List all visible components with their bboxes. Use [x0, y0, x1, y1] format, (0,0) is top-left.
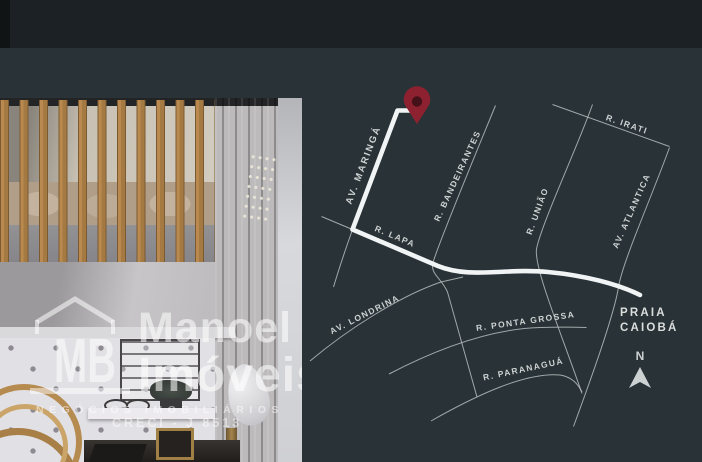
street-londrina-curve [310, 277, 463, 361]
street-irati-line [553, 105, 670, 147]
compass-north-arrow-icon [629, 367, 651, 388]
street-label-r-ponta-grossa: R. PONTA GROSSA [475, 309, 575, 333]
street-maringa-south-segment [334, 230, 353, 288]
area-label-praia-line1: PRAIA [620, 307, 667, 319]
street-label-av-atlantica: AV. ATLANTICA [610, 172, 652, 250]
street-label-r-uniao: R. UNIÃO [524, 186, 550, 236]
street-label-r-irati: R. IRATI [605, 112, 650, 136]
street-paranagua-curve [431, 375, 582, 421]
highlighted-route-line [353, 111, 641, 296]
street-label-r-bandeirantes: R. BANDEIRANTES [432, 129, 483, 223]
area-label-praia-line2: CAIOBÁ [620, 321, 679, 334]
street-uniao-line [536, 105, 592, 394]
real-estate-flyer: MB Manoel Imóveis NEGÓCIOS IMOBILIÁRIOS … [0, 0, 702, 462]
street-label-av-londrina: AV. LONDRINA [328, 292, 401, 336]
street-label-r-paranagua: R. PARANAGUÁ [482, 356, 565, 383]
location-pin-icon [404, 86, 430, 124]
location-map: AV. MARINGÁ R. LAPA R. BANDEIRANTES R. U… [0, 0, 702, 462]
street-lapa-northwest-segment [322, 217, 353, 230]
pin-hole [412, 96, 422, 106]
compass-north-label: N [636, 349, 645, 363]
